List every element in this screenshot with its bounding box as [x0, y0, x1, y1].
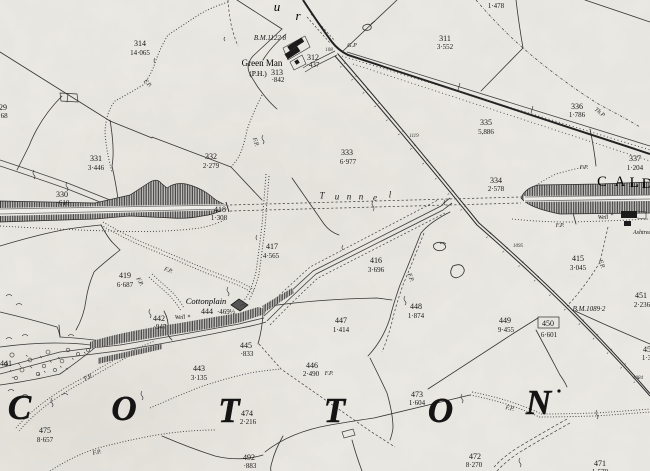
svg-text:3·696: 3·696	[368, 266, 385, 274]
svg-text:448: 448	[410, 302, 422, 311]
svg-text:450: 450	[542, 319, 554, 328]
svg-text:416: 416	[370, 256, 382, 265]
svg-text:311: 311	[439, 34, 451, 43]
svg-text:3·552: 3·552	[437, 43, 454, 51]
svg-text:6·601: 6·601	[541, 331, 558, 339]
svg-text:471: 471	[594, 459, 606, 468]
svg-text:2·578: 2·578	[488, 185, 505, 193]
svg-text:5,886: 5,886	[478, 128, 494, 136]
svg-text:Green Man: Green Man	[242, 58, 283, 68]
svg-text:447: 447	[335, 316, 347, 325]
svg-text:8·270: 8·270	[466, 461, 483, 469]
svg-text:G.P: G.P	[347, 43, 357, 49]
svg-text:1095: 1095	[513, 244, 524, 249]
svg-text:331: 331	[90, 154, 102, 163]
svg-text:Well: Well	[598, 215, 609, 221]
svg-text:n: n	[347, 192, 352, 202]
svg-text:C: C	[597, 174, 607, 190]
svg-text:D: D	[642, 176, 650, 192]
svg-text:Well: Well	[175, 315, 186, 321]
svg-text:332: 332	[205, 152, 217, 161]
svg-text:1·874: 1·874	[408, 312, 425, 320]
svg-text:474: 474	[241, 409, 253, 418]
svg-text:2·216: 2·216	[240, 418, 257, 426]
svg-text:1·308: 1·308	[211, 214, 228, 222]
svg-text:C: C	[8, 388, 32, 427]
svg-text:9·455: 9·455	[498, 326, 515, 334]
svg-text:336: 336	[571, 102, 583, 111]
svg-text:418: 418	[214, 205, 226, 214]
svg-text:8·657: 8·657	[37, 436, 54, 444]
svg-text:442: 442	[153, 314, 165, 323]
svg-text:1·373: 1·373	[642, 354, 650, 362]
svg-text:333: 333	[341, 148, 353, 157]
svg-text:Cottonplain: Cottonplain	[186, 296, 227, 306]
svg-text:6·977: 6·977	[340, 158, 357, 166]
svg-text:1084: 1084	[633, 376, 644, 381]
svg-text:·610: ·610	[57, 199, 70, 207]
svg-text:n: n	[359, 192, 364, 202]
svg-text:1·786: 1·786	[569, 111, 586, 119]
svg-text:T: T	[324, 391, 347, 430]
svg-text:O: O	[428, 391, 453, 430]
svg-text:6·687: 6·687	[117, 281, 134, 289]
svg-text:330: 330	[56, 190, 68, 199]
svg-text:473: 473	[411, 390, 423, 399]
svg-text:446: 446	[306, 361, 318, 370]
svg-text:F.P.: F.P.	[324, 371, 334, 377]
svg-text:3·135: 3·135	[191, 374, 208, 382]
svg-text:u: u	[274, 0, 281, 14]
svg-text:1·204: 1·204	[627, 164, 644, 172]
svg-text:·842: ·842	[272, 76, 285, 84]
svg-text:T: T	[218, 391, 241, 430]
svg-text:L: L	[630, 175, 639, 191]
svg-text:4·565: 4·565	[263, 252, 280, 260]
svg-text:449: 449	[499, 316, 511, 325]
svg-text:14·065: 14·065	[130, 49, 150, 57]
svg-text:1119: 1119	[409, 134, 419, 139]
svg-text:B.M.1089·2: B.M.1089·2	[573, 305, 606, 313]
svg-text:492: 492	[243, 453, 255, 462]
svg-text:u: u	[335, 192, 340, 202]
svg-text:·883: ·883	[244, 462, 257, 470]
svg-text:A: A	[615, 174, 626, 190]
svg-text:29: 29	[0, 103, 7, 112]
svg-text:·947: ·947	[154, 323, 167, 331]
svg-text:3·045: 3·045	[570, 264, 587, 272]
svg-text:419: 419	[119, 271, 131, 280]
svg-text:475: 475	[39, 426, 51, 435]
svg-text:e: e	[373, 193, 377, 203]
svg-text:2·490: 2·490	[303, 370, 320, 378]
svg-text:417: 417	[266, 242, 278, 251]
svg-text:1·414: 1·414	[333, 326, 350, 334]
svg-text:N: N	[525, 383, 553, 422]
svg-text:F.P.: F.P.	[555, 223, 565, 229]
svg-text:335: 335	[480, 118, 492, 127]
svg-text:472: 472	[469, 452, 481, 461]
svg-text:445: 445	[240, 341, 252, 350]
svg-text:451: 451	[635, 291, 647, 300]
svg-text:(P.H.): (P.H.)	[249, 69, 267, 78]
svg-text:·437: ·437	[307, 61, 320, 69]
svg-text:444: 444	[201, 307, 213, 316]
svg-text:452: 452	[643, 345, 650, 354]
svg-text:443: 443	[193, 364, 205, 373]
svg-text:415: 415	[572, 254, 584, 263]
svg-text:2·279: 2·279	[203, 162, 220, 170]
svg-text:1·478: 1·478	[488, 2, 505, 10]
svg-text:·68: ·68	[0, 112, 8, 120]
svg-text:Ashtree: Ashtree	[632, 230, 650, 236]
svg-text:·469½: ·469½	[217, 308, 235, 316]
svg-text:1·604: 1·604	[409, 399, 426, 407]
svg-text:337: 337	[629, 154, 641, 163]
svg-text:3·446: 3·446	[88, 164, 105, 172]
svg-text:334: 334	[490, 176, 502, 185]
svg-text:2·236: 2·236	[634, 301, 650, 309]
svg-text:·833: ·833	[241, 350, 254, 358]
svg-text:441: 441	[0, 359, 12, 368]
svg-text:F.P.: F.P.	[579, 165, 589, 171]
svg-text:O: O	[111, 389, 136, 428]
svg-text:314: 314	[134, 39, 146, 48]
svg-text:108: 108	[325, 48, 333, 53]
svg-text:B.M.1122·8: B.M.1122·8	[254, 34, 287, 42]
